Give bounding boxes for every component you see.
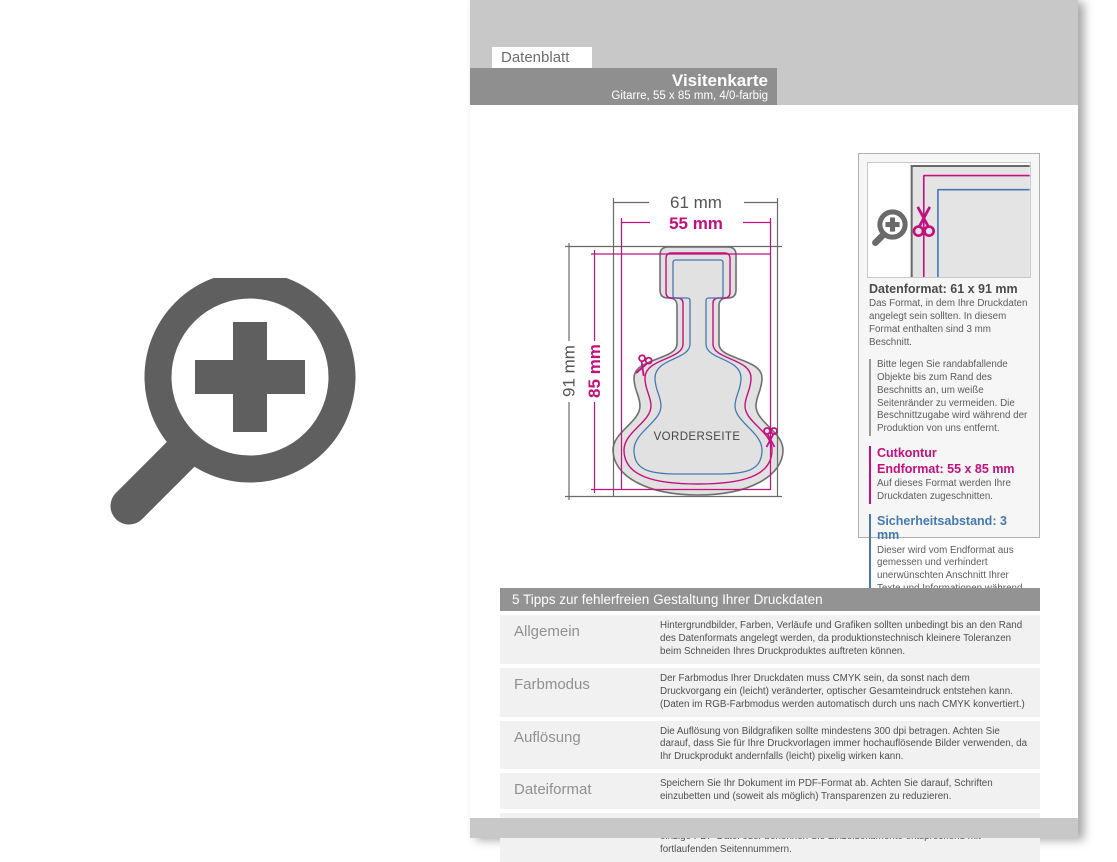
zoom-plus-icon[interactable] — [105, 278, 370, 553]
row-label: Auflösung — [500, 721, 660, 755]
row-text: Die Auflösung von Bildgrafiken sollte mi… — [660, 721, 1040, 770]
table-row: Auflösung Die Auflösung von Bildgrafiken… — [500, 721, 1040, 770]
endformat-heading: Endformat: 55 x 85 mm — [877, 462, 1031, 476]
datasheet-page: Datenblatt Visitenkarte Gitarre, 55 x 85… — [470, 0, 1078, 838]
row-label: Farbmodus — [500, 668, 660, 702]
table-row: Dateiformat Speichern Sie Ihr Dokument i… — [500, 773, 1040, 809]
dim-height-inner: 85 mm — [585, 344, 604, 398]
row-text: Hintergrundbilder, Farben, Verläufe und … — [660, 615, 1040, 664]
page-subtitle: Gitarre, 55 x 85 mm, 4/0-farbig — [470, 90, 768, 103]
datenformat-text: Das Format, in dem Ihre Druckdaten angel… — [869, 298, 1031, 349]
sicherheitsabstand-heading: Sicherheitsabstand: 3 mm — [877, 514, 1031, 543]
page-title: Visitenkarte — [470, 71, 768, 90]
dim-width-inner: 55 mm — [669, 214, 723, 233]
row-label: Allgemein — [500, 615, 660, 649]
corner-preview — [867, 162, 1031, 278]
plus-glyph — [195, 322, 305, 432]
screenshot-stage: Datenblatt Visitenkarte Gitarre, 55 x 85… — [0, 0, 1117, 838]
preview-zoom-icon[interactable] — [875, 212, 905, 243]
row-text: Der Farbmodus Ihrer Druckdaten muss CMYK… — [660, 668, 1040, 717]
cutkontur-heading: Cutkontur — [877, 446, 1031, 460]
tips-heading: 5 Tipps zur fehlerfreien Gestaltung Ihre… — [500, 588, 1040, 611]
dim-width-outer: 61 mm — [670, 193, 722, 212]
bleed-note-block: Bitte legen Sie randabfallende Objekte b… — [869, 359, 1031, 435]
bottom-gray-band — [470, 818, 1078, 838]
row-text: Speichern Sie Ihr Dokument im PDF-Format… — [660, 773, 1040, 809]
product-title-bar: Visitenkarte Gitarre, 55 x 85 mm, 4/0-fa… — [470, 68, 777, 105]
card-fill — [912, 166, 1030, 277]
datenformat-heading: Datenformat: 61 x 91 mm — [869, 282, 1031, 296]
table-row: Allgemein Hintergrundbilder, Farben, Ver… — [500, 615, 1040, 664]
row-label: Dateiformat — [500, 773, 660, 807]
endformat-text: Auf dieses Format werden Ihre Druckdaten… — [877, 478, 1031, 503]
guitar-dimension-drawing: 61 mm 55 mm 91 mm 85 mm VORDERSEITE — [555, 183, 810, 513]
datenblatt-tab: Datenblatt — [492, 47, 592, 68]
cutkontur-block: Cutkontur Endformat: 55 x 85 mm Auf dies… — [869, 446, 1031, 504]
dim-height-outer: 91 mm — [560, 345, 579, 397]
table-row: Farbmodus Der Farbmodus Ihrer Druckdaten… — [500, 668, 1040, 717]
front-side-label: VORDERSEITE — [654, 431, 741, 443]
bleed-note-text: Bitte legen Sie randabfallende Objekte b… — [877, 359, 1031, 435]
format-info-panel: Datenformat: 61 x 91 mm Das Format, in d… — [858, 153, 1040, 538]
